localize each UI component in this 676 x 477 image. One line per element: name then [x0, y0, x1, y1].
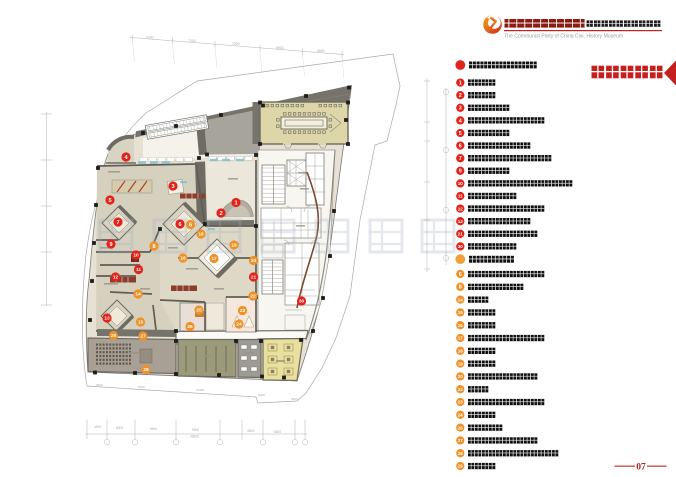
- svg-text:7: 7: [459, 156, 462, 162]
- svg-text:4500: 4500: [247, 429, 254, 433]
- svg-text:10: 10: [458, 181, 464, 186]
- svg-text:07: 07: [636, 462, 646, 472]
- svg-text:14: 14: [458, 297, 464, 302]
- svg-text:18: 18: [198, 232, 204, 238]
- svg-text:6600: 6600: [317, 49, 325, 53]
- svg-text:27: 27: [458, 438, 464, 443]
- svg-text:28: 28: [458, 451, 464, 456]
- svg-text:26: 26: [458, 425, 464, 430]
- svg-text:2: 2: [459, 93, 462, 99]
- svg-text:9000: 9000: [150, 427, 157, 431]
- svg-text:7200: 7200: [232, 42, 240, 46]
- svg-text:7200: 7200: [146, 36, 154, 40]
- svg-text:15: 15: [138, 320, 144, 326]
- svg-text:6: 6: [459, 272, 462, 278]
- svg-text:7: 7: [116, 220, 119, 226]
- svg-text:29: 29: [458, 464, 464, 469]
- svg-text:3: 3: [171, 184, 174, 190]
- svg-text:4500: 4500: [291, 397, 298, 401]
- svg-text:21: 21: [251, 275, 257, 281]
- svg-text:8: 8: [459, 285, 462, 291]
- svg-text:16: 16: [458, 323, 464, 328]
- svg-text:27: 27: [140, 334, 146, 340]
- svg-text:The Communist Party of China C: The Communist Party of China Cixi. Histo…: [504, 33, 623, 39]
- svg-text:13: 13: [458, 219, 464, 224]
- svg-text:20: 20: [458, 374, 464, 379]
- svg-text:25: 25: [196, 308, 202, 314]
- svg-text:5: 5: [459, 131, 462, 137]
- svg-text:17: 17: [211, 256, 217, 262]
- svg-text:29: 29: [111, 333, 117, 339]
- svg-text:5: 5: [108, 198, 111, 204]
- svg-text:19: 19: [458, 361, 464, 366]
- svg-text:21: 21: [458, 232, 464, 237]
- svg-text:28: 28: [143, 367, 149, 373]
- svg-text:21600: 21600: [196, 388, 205, 392]
- svg-text:9000: 9000: [192, 428, 199, 432]
- svg-text:16: 16: [180, 256, 186, 262]
- svg-text:17: 17: [458, 336, 464, 341]
- svg-text:6000: 6000: [138, 385, 145, 389]
- svg-text:15: 15: [458, 310, 464, 315]
- svg-text:43500: 43500: [190, 435, 199, 439]
- svg-text:20: 20: [251, 258, 257, 264]
- svg-text:8: 8: [152, 244, 155, 250]
- svg-text:6900: 6900: [276, 46, 284, 50]
- svg-text:6000: 6000: [116, 426, 123, 430]
- svg-text:11: 11: [136, 267, 141, 273]
- svg-text:23: 23: [240, 308, 246, 314]
- svg-text:3900: 3900: [96, 383, 103, 387]
- svg-text:6: 6: [189, 223, 192, 229]
- svg-text:30: 30: [458, 244, 464, 249]
- svg-text:30: 30: [299, 299, 305, 305]
- svg-text:7200: 7200: [188, 39, 196, 43]
- svg-text:1: 1: [459, 81, 462, 87]
- svg-text:13: 13: [104, 316, 110, 322]
- svg-text:14: 14: [135, 292, 141, 298]
- svg-text:6600: 6600: [274, 430, 281, 434]
- svg-text:1: 1: [234, 201, 237, 207]
- svg-text:3: 3: [459, 106, 462, 112]
- svg-text:4000: 4000: [94, 425, 101, 429]
- svg-text:6: 6: [459, 144, 462, 150]
- svg-text:23: 23: [458, 400, 464, 405]
- svg-text:9: 9: [109, 242, 112, 248]
- svg-text:24: 24: [458, 413, 464, 418]
- svg-text:10: 10: [133, 253, 139, 259]
- svg-text:4: 4: [459, 118, 462, 124]
- svg-text:9: 9: [459, 169, 462, 175]
- svg-text:12: 12: [458, 206, 464, 211]
- svg-text:22: 22: [458, 387, 464, 392]
- svg-text:18: 18: [458, 349, 464, 354]
- svg-text:6: 6: [178, 222, 181, 228]
- svg-text:22: 22: [250, 294, 256, 300]
- svg-text:11: 11: [458, 194, 463, 199]
- svg-text:2: 2: [219, 211, 222, 217]
- svg-text:12: 12: [113, 275, 119, 281]
- svg-text:24: 24: [236, 322, 242, 328]
- svg-text:26: 26: [187, 324, 193, 330]
- svg-text:19: 19: [231, 243, 237, 249]
- svg-text:6000: 6000: [258, 393, 265, 397]
